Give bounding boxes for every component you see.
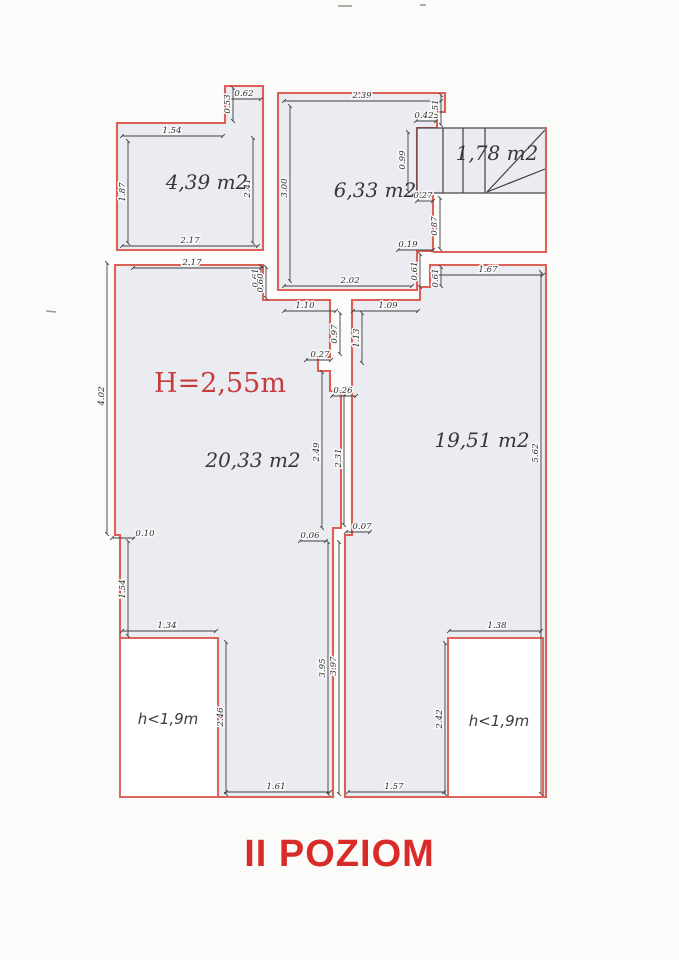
dim-label-d-closet-left: 2.42: [435, 709, 445, 729]
dim-label-mid-open-left: 1.10: [295, 301, 315, 311]
dim-label-c-left-lower: 1.54: [118, 579, 128, 598]
dim-label-b-top: 2.39: [351, 91, 372, 101]
dim-label-b-left: 3.00: [280, 178, 290, 198]
dim-label-d-right: 5.62: [531, 443, 541, 462]
dim-label-b-notch-w: 0.42: [414, 111, 433, 121]
floor-plan-svg: 0.62 0.53 1.54 1.87 2.41 2.17 2.39 3.00 …: [0, 0, 679, 830]
dim-label-mid-wall-right: 1.13: [352, 328, 362, 348]
dim-label-mid-wall-left: 0.97: [330, 324, 340, 344]
closet-right-label: h<1,9m: [469, 712, 530, 730]
scan-dash-left: [46, 311, 56, 312]
dim-label-b-step1: 0.27: [413, 191, 433, 201]
dim-label-mid-step1: 0.27: [310, 350, 330, 360]
dim-label-d-notch: 0.61: [431, 268, 441, 287]
dim-label-mid-open-right: 1.09: [378, 301, 398, 311]
dim-label-shaft-step-r: 0.07: [352, 522, 372, 532]
floor-plan-page: 0.62 0.53 1.54 1.87 2.41 2.17 2.39 3.00 …: [0, 0, 679, 960]
room-19-51-area-label: 19,51 m2: [434, 428, 529, 452]
dim-label-shaft-left: 2.49: [312, 442, 322, 463]
stair-landing-fill: [434, 194, 545, 251]
closet-left-label: h<1,9m: [138, 710, 199, 728]
ceiling-height-label: H=2,55m: [154, 368, 286, 399]
dim-label-a-notch-w: 0.62: [234, 89, 253, 99]
dim-label-a-left: 1.87: [118, 182, 128, 202]
dim-label-c-top: 2.17: [181, 258, 202, 268]
room-20-33-area-label: 20,33 m2: [204, 448, 300, 472]
room-6-33-area-label: 6,33 m2: [334, 178, 417, 202]
dim-label-d-bottom: 1.57: [384, 782, 404, 792]
dim-label-d-mid: 3.97: [329, 656, 339, 676]
dim-label-b-landing: 0.87: [430, 216, 440, 236]
dim-label-a-notch-h: 0.53: [223, 94, 233, 114]
dim-label-d-top: 1.67: [478, 265, 498, 275]
dim-label-c-closet-top: 1.34: [157, 621, 176, 631]
dim-label-b-bottom: 2.02: [339, 276, 359, 286]
dim-label-d-closet-top: 1.38: [487, 621, 507, 631]
room-4-39-area-label: 4,39 m2: [165, 170, 249, 194]
dim-label-c-mid: 3.95: [318, 658, 328, 677]
stairs-area-label: 1,78 m2: [456, 141, 539, 165]
dim-label-c-left: 4.02: [97, 386, 107, 406]
dim-label-shaft-step-l: 0.06: [300, 531, 320, 541]
dim-label-b-step3: 0.61: [410, 261, 420, 280]
dim-label-a-bottom: 2.17: [179, 236, 200, 246]
room-4-39-outline: [117, 86, 263, 250]
dim-label-c-bottom: 1.61: [266, 782, 285, 792]
dim-label-mid-step2: 0.26: [333, 386, 353, 396]
dim-label-c-wall-step: 0.10: [135, 529, 155, 539]
dim-label-a-top: 1.54: [162, 126, 181, 136]
dim-label-b-stair: 0.99: [398, 150, 408, 170]
dim-label-c-step: 0.60: [256, 273, 266, 293]
floor-title: II POZIOM: [0, 833, 679, 876]
dim-label-c-closet-right: 2.46: [216, 707, 226, 728]
dim-label-shaft-right: 2.31: [334, 448, 344, 468]
dim-label-b-step2: 0.19: [398, 240, 418, 250]
